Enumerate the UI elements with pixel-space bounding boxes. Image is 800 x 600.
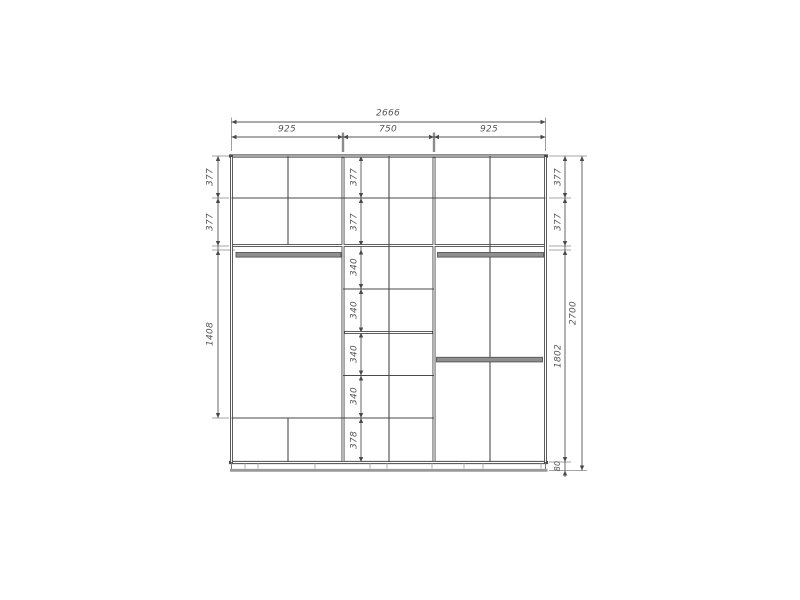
left-hanging-rod [236,253,341,258]
dim-middle-row4: 340 [351,301,360,319]
wardrobe-drawing-canvas [0,0,800,600]
dim-middle-row1: 377 [351,168,360,186]
right-upper-hanging-rod [438,253,544,258]
dim-right-row1: 377 [555,168,564,186]
dim-section-middle: 750 [379,126,397,135]
arrows-left [232,120,440,139]
dim-middle-row3: 340 [351,258,360,276]
dim-middle-row6: 340 [351,387,360,405]
hanging-rods [236,253,544,362]
dim-overall-width: 2666 [376,110,400,119]
feet-ticks [245,464,541,469]
dimension-arrows [216,120,584,476]
dim-middle-row2: 377 [351,213,360,231]
right-lower-hanging-rod [437,357,543,362]
dim-left-row1: 377 [207,168,216,186]
dim-right-plinth: 80 [554,461,562,472]
dim-left-row2: 377 [207,213,216,231]
dim-left-hanging: 1408 [207,322,216,346]
dim-overall-height: 2700 [570,301,579,325]
dim-middle-row7: 378 [351,431,360,449]
arrows-right [338,120,546,139]
partition-extension-marks [343,133,434,153]
dim-right-row2: 377 [555,213,564,231]
dimension-lines [218,122,582,477]
dim-section-right: 925 [480,126,498,135]
interior-dividers [232,156,546,462]
dim-section-left: 925 [278,126,296,135]
arrows-up [216,156,584,476]
technical-drawing-page: 2666 925 750 925 377 377 1408 377 377 34… [0,0,800,600]
dim-right-hanging: 1802 [555,344,564,368]
dim-middle-row5: 340 [351,345,360,363]
